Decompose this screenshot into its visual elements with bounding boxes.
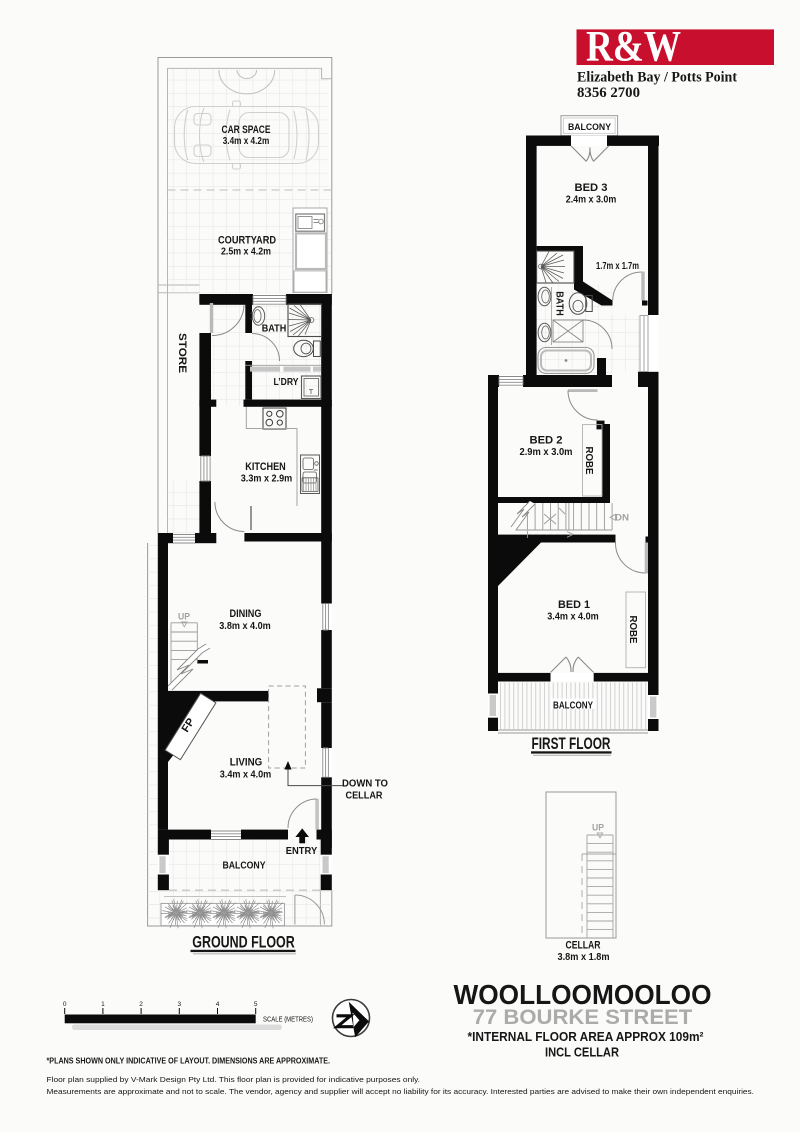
svg-text:BALCONY: BALCONY <box>568 122 611 132</box>
svg-text:SCALE (METRES): SCALE (METRES) <box>263 1015 313 1024</box>
svg-text:STORE: STORE <box>176 333 188 373</box>
svg-text:BALCONY: BALCONY <box>553 700 593 712</box>
svg-text:ROBE: ROBE <box>627 616 638 644</box>
svg-text:BATH: BATH <box>262 322 287 334</box>
svg-text:R&W: R&W <box>586 24 681 71</box>
svg-text:GROUND FLOOR: GROUND FLOOR <box>192 934 295 952</box>
svg-text:0: 0 <box>63 1001 67 1008</box>
svg-text:3: 3 <box>177 1001 181 1008</box>
svg-text:3.4m x 4.0m: 3.4m x 4.0m <box>220 769 272 781</box>
svg-text:Measurements are approximate a: Measurements are approximate and not to … <box>47 1087 755 1096</box>
svg-text:*PLANS SHOWN ONLY INDICATIVE O: *PLANS SHOWN ONLY INDICATIVE OF LAYOUT. … <box>47 1057 331 1066</box>
svg-text:2.9m x 3.0m: 2.9m x 3.0m <box>520 446 573 458</box>
svg-text:Elizabeth Bay / Potts Point: Elizabeth Bay / Potts Point <box>577 70 737 86</box>
svg-text:UP: UP <box>178 612 190 622</box>
svg-text:ROBE: ROBE <box>583 447 594 475</box>
svg-text:DINING: DINING <box>230 608 262 620</box>
svg-text:LIVING: LIVING <box>230 757 263 769</box>
svg-text:BED 2: BED 2 <box>530 435 563 447</box>
svg-text:2.4m x 3.0m: 2.4m x 3.0m <box>566 194 617 206</box>
svg-text:BED 3: BED 3 <box>575 182 608 194</box>
svg-text:FIRST FLOOR: FIRST FLOOR <box>532 735 611 753</box>
svg-text:CELLAR: CELLAR <box>346 791 384 802</box>
svg-text:KITCHEN: KITCHEN <box>245 461 286 473</box>
svg-text:DOWN TO: DOWN TO <box>342 779 388 790</box>
svg-text:2: 2 <box>139 1001 143 1008</box>
svg-text:4: 4 <box>216 1001 220 1008</box>
svg-text:3.3m x 2.9m: 3.3m x 2.9m <box>241 473 293 485</box>
svg-text:3.4m x 4.0m: 3.4m x 4.0m <box>547 611 599 623</box>
svg-text:3.4m x 4.2m: 3.4m x 4.2m <box>223 135 270 147</box>
svg-text:UP: UP <box>592 823 604 833</box>
svg-text:5: 5 <box>254 1001 258 1008</box>
svg-text:CELLAR: CELLAR <box>566 940 601 952</box>
svg-text:3.8m x 1.8m: 3.8m x 1.8m <box>558 951 610 963</box>
svg-text:*INTERNAL FLOOR AREA APPROX 10: *INTERNAL FLOOR AREA APPROX 109m² <box>468 1030 704 1044</box>
svg-text:INCL CELLAR: INCL CELLAR <box>545 1046 619 1060</box>
svg-text:1.7m x 1.7m: 1.7m x 1.7m <box>596 260 639 272</box>
svg-text:ENTRY: ENTRY <box>286 845 318 857</box>
svg-text:BED 1: BED 1 <box>558 599 590 611</box>
svg-text:L’DRY: L’DRY <box>274 376 299 388</box>
svg-text:DN: DN <box>615 513 629 523</box>
svg-text:BALCONY: BALCONY <box>223 860 266 872</box>
svg-text:8356 2700: 8356 2700 <box>577 85 640 101</box>
svg-text:BATH: BATH <box>554 291 566 316</box>
svg-text:3.8m x 4.0m: 3.8m x 4.0m <box>219 620 271 632</box>
svg-text:77 BOURKE STREET: 77 BOURKE STREET <box>473 1006 693 1029</box>
svg-text:2.5m x 4.2m: 2.5m x 4.2m <box>221 246 271 258</box>
svg-text:1: 1 <box>101 1001 105 1008</box>
svg-text:Floor plan supplied by V-Mark: Floor plan supplied by V-Mark Design Pty… <box>47 1075 421 1084</box>
